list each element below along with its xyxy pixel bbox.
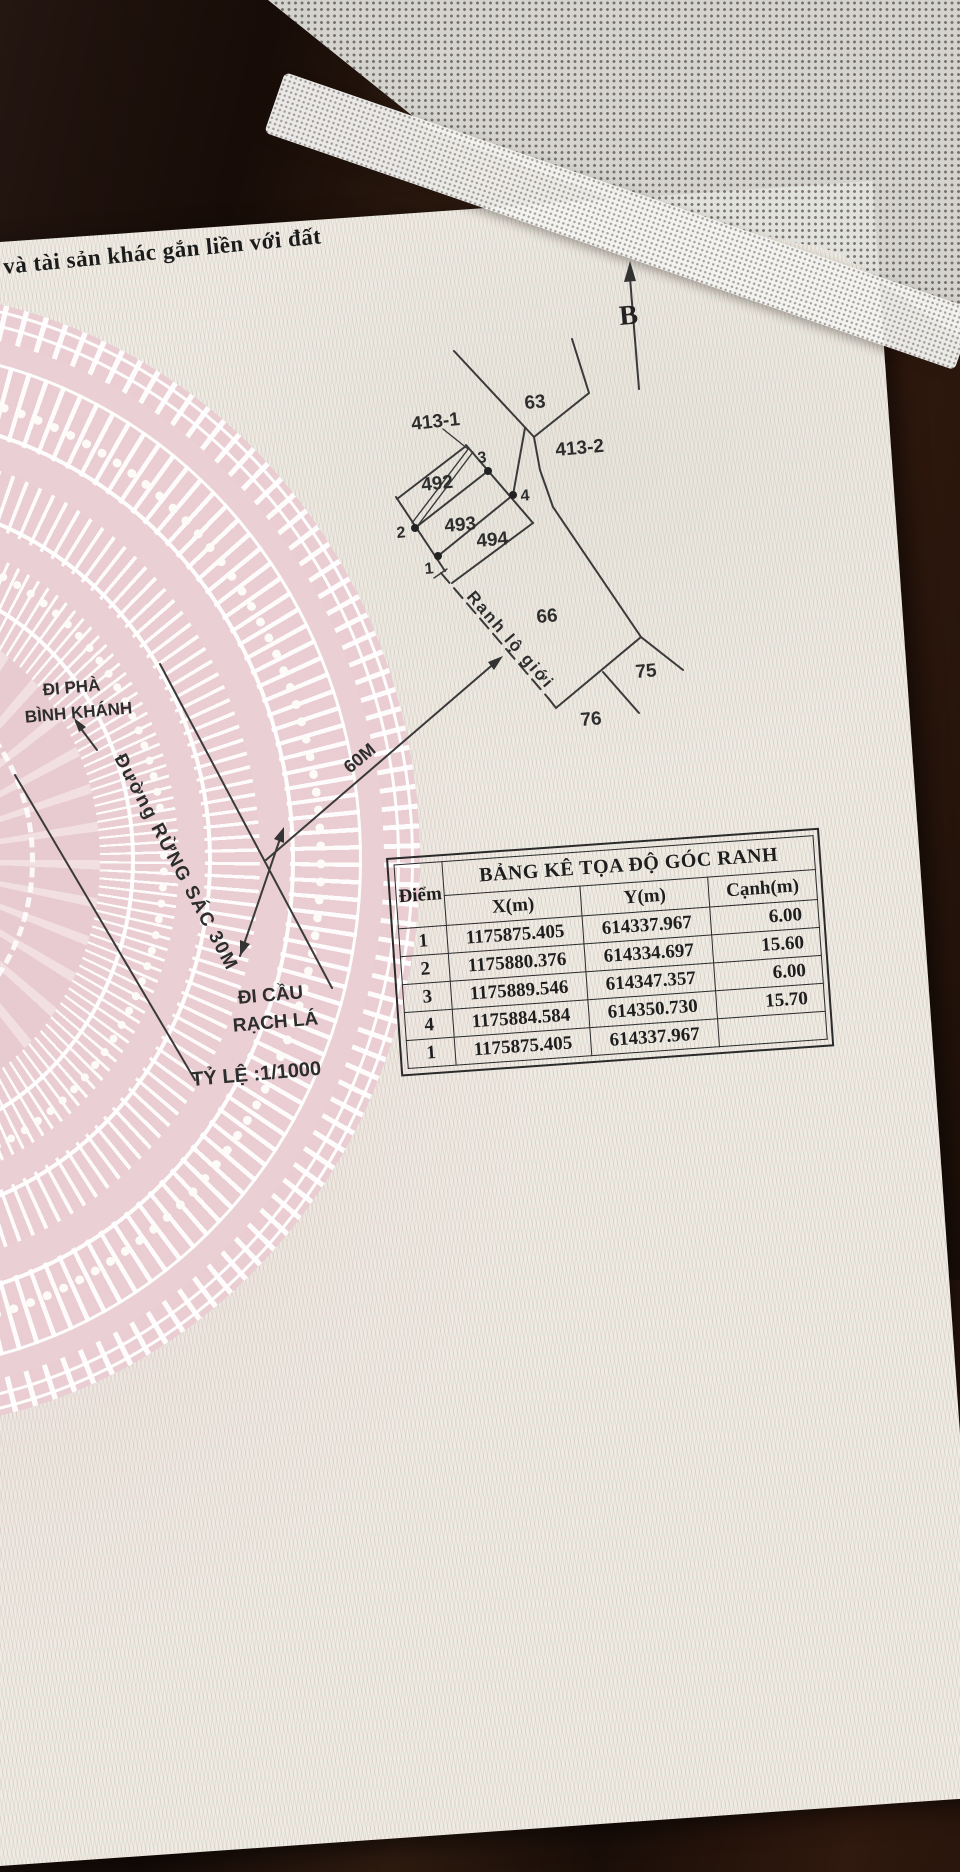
cell-point: 1 [406,1037,456,1068]
cell-point: 3 [402,981,452,1012]
coordinate-table: Điểm BẢNG KÊ TỌA ĐỘ GÓC RANH X(m) Y(m) C… [386,828,834,1077]
cell-point: 1 [398,925,448,956]
cell-edge [718,1011,828,1046]
cell-point: 2 [400,953,450,984]
cell-point: 4 [404,1009,454,1040]
col-header-point: Điểm [394,862,446,929]
photo-of-land-certificate: { "page": { "headline": "và tài sản khác… [0,0,960,1280]
